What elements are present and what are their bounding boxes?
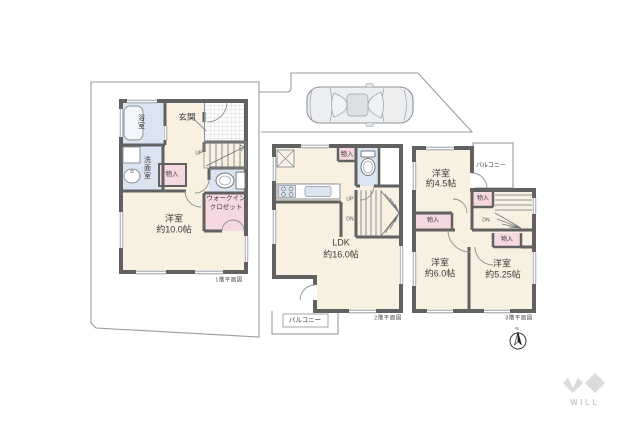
will-logo-text: WILL	[570, 399, 600, 407]
washing-machine-icon	[123, 147, 140, 163]
compass-icon	[510, 332, 526, 349]
room-label-storage-2f: 物入	[341, 152, 354, 159]
room-label-bedroom3-3f: 洋室	[493, 260, 511, 269]
room-label-bath: 浴室	[138, 114, 145, 130]
room-size-bedroom2-3f: 約6.0帖	[425, 270, 456, 279]
stairs-up-label-2f: UP	[346, 198, 353, 203]
room-label-storage-1f: 物入	[166, 172, 179, 179]
room-label-bedroom-1f: 洋室	[165, 215, 183, 224]
washbasin-icon	[124, 169, 140, 183]
room-label-ldk: LDK	[332, 239, 350, 248]
stairs-up-label-1f: UP	[195, 152, 202, 157]
room-label-wic-1: ウォークイン	[207, 196, 246, 203]
toilet-icon-2f	[361, 151, 375, 176]
floorplan-sheet: 浴室 玄関 洗面室 物入 UP ウォークイン クロゼット 洋室 約10.0帖 1…	[0, 0, 640, 427]
room-label-storage-top-3f: 物入	[477, 196, 489, 202]
compass-north-label: N	[515, 327, 518, 332]
toilet-icon-1f	[216, 172, 245, 189]
room-label-balcony-3f: バルコニー	[476, 163, 506, 169]
room-size-bedroom1-3f: 約4.5帖	[426, 180, 457, 189]
will-logo-icon	[563, 370, 605, 393]
caption-1f: 1階平面図	[215, 278, 243, 284]
floorplan-drawing	[0, 0, 640, 427]
caption-3f: 3階平面図	[505, 316, 533, 322]
stairs-down-label-3f: DN	[482, 219, 490, 224]
room-label-storage-right-3f: 物入	[501, 237, 513, 243]
room-label-bedroom2-3f: 洋室	[431, 259, 449, 268]
room-label-wic-2: クロゼット	[210, 205, 243, 212]
room-size-bedroom3-3f: 約5.25帖	[485, 271, 521, 280]
room-label-washroom: 洗面室	[144, 156, 151, 180]
car-icon	[307, 84, 413, 127]
room-label-entrance: 玄関	[178, 113, 195, 122]
floorplan-3f	[412, 143, 536, 313]
room-size-bedroom-1f: 約10.0帖	[156, 226, 192, 235]
room-label-balcony-2f: バルコニー	[289, 318, 321, 325]
room-label-bedroom1-3f: 洋室	[432, 170, 450, 179]
kitchen-counter-icon	[277, 184, 340, 199]
shaft-box-icon	[277, 150, 294, 167]
room-size-ldk: 約16.0帖	[323, 251, 359, 260]
caption-2f: 2階平面図	[374, 316, 402, 322]
stairs-down-label-2f: DN	[346, 218, 354, 223]
room-label-storage-left-3f: 物入	[427, 218, 439, 224]
